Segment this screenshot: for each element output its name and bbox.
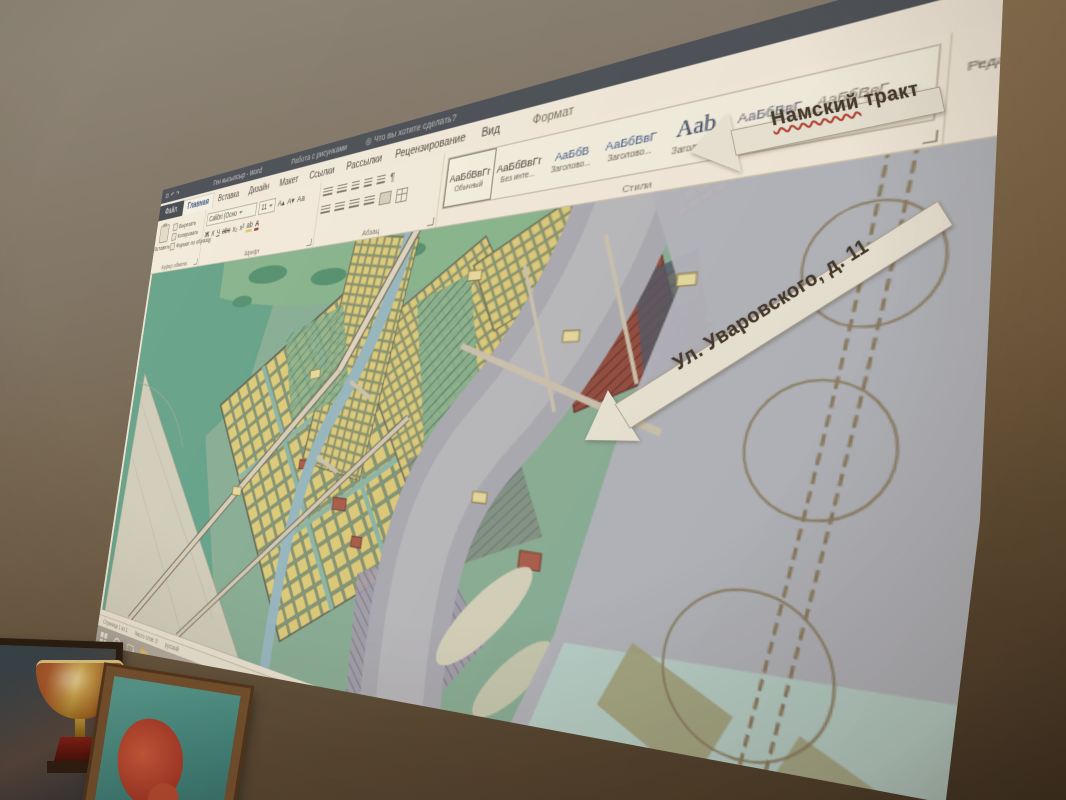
projected-word-window: ⊟ ↶ ↷ Ген кысылсыр - Word Работа с рисун… xyxy=(95,0,1066,800)
align-right-icon[interactable] xyxy=(348,198,359,210)
decrease-indent-icon[interactable] xyxy=(363,177,372,189)
subscript-button[interactable]: x₂ xyxy=(232,224,238,234)
find-icon xyxy=(1024,21,1047,42)
style-heading1[interactable]: АаБбВ Заголово... xyxy=(541,123,603,190)
trophy-stem xyxy=(75,717,85,737)
show-paragraph-marks-icon[interactable]: ¶ xyxy=(389,172,395,185)
file-explorer-button[interactable] xyxy=(139,645,150,665)
style-normal[interactable]: АаБбВвГг Обычный xyxy=(443,148,497,208)
font-color-button[interactable]: А xyxy=(254,218,260,231)
multilevel-list-icon[interactable] xyxy=(351,180,360,192)
strikethrough-button[interactable]: abc xyxy=(222,225,232,235)
font-dialog-launcher[interactable] xyxy=(306,239,312,247)
clipboard-icon xyxy=(159,224,170,243)
painting-flower-shape xyxy=(111,714,190,800)
paragraph-dialog-launcher[interactable] xyxy=(427,217,434,226)
style-heading2[interactable]: АаБбВвГ Заголово... xyxy=(597,109,665,180)
quick-access-toolbar[interactable]: ⊟ ↶ ↷ xyxy=(165,189,180,200)
tilted-painting xyxy=(79,666,251,800)
edge-button[interactable]: e xyxy=(153,651,164,671)
undo-icon[interactable]: ↶ xyxy=(170,190,174,198)
windows-logo-icon xyxy=(100,631,103,637)
scissors-icon xyxy=(173,223,179,231)
italic-button[interactable]: К xyxy=(211,229,215,238)
justify-icon[interactable] xyxy=(363,195,375,207)
align-center-icon[interactable] xyxy=(334,201,345,213)
numbered-list-icon[interactable] xyxy=(336,183,347,195)
style-no-spacing[interactable]: АаБбВвГг Без инте... xyxy=(491,136,548,199)
text-highlight-button[interactable]: ab xyxy=(246,219,254,232)
borders-icon[interactable] xyxy=(395,186,408,202)
photo-scene: ⊟ ↶ ↷ Ген кысылсыр - Word Работа с рисун… xyxy=(0,0,1066,800)
redo-icon[interactable]: ↷ xyxy=(176,189,180,197)
increase-indent-icon[interactable] xyxy=(376,174,386,186)
shading-icon[interactable] xyxy=(378,190,391,205)
copy-icon xyxy=(171,233,177,241)
task-view-button[interactable] xyxy=(125,640,135,659)
word-taskbar-button[interactable]: W xyxy=(168,657,179,678)
save-icon[interactable]: ⊟ xyxy=(165,192,169,200)
change-case-button[interactable]: Аа xyxy=(297,193,306,204)
underline-button[interactable]: Ч xyxy=(216,227,221,236)
folder-icon xyxy=(140,649,148,661)
align-left-icon[interactable] xyxy=(320,204,331,216)
task-view-icon xyxy=(126,643,134,655)
format-painter-icon xyxy=(170,242,176,250)
lightbulb-icon: ◎ xyxy=(365,134,372,147)
grow-font-button[interactable]: А▴ xyxy=(277,197,285,209)
superscript-button[interactable]: x² xyxy=(239,222,245,232)
bold-button[interactable]: Ж xyxy=(204,230,210,239)
bullet-list-icon[interactable] xyxy=(322,187,333,199)
shrink-font-button[interactable]: А▾ xyxy=(287,195,295,207)
